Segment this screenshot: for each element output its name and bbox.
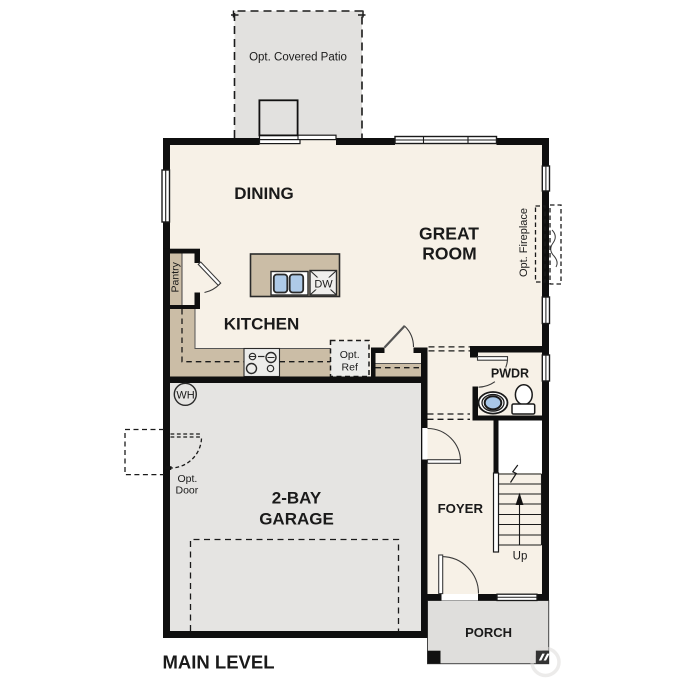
svg-text:GREAT: GREAT xyxy=(419,224,479,244)
svg-text:Opt. Fireplace: Opt. Fireplace xyxy=(518,208,530,277)
svg-text:ROOM: ROOM xyxy=(422,244,476,264)
svg-text:Opt. Covered Patio: Opt. Covered Patio xyxy=(249,52,347,64)
svg-text:MAIN LEVEL: MAIN LEVEL xyxy=(163,652,275,673)
svg-text:DINING: DINING xyxy=(234,184,294,203)
svg-text:FOYER: FOYER xyxy=(438,501,484,516)
svg-text:WH: WH xyxy=(176,389,194,401)
svg-text:PWDR: PWDR xyxy=(491,367,529,381)
svg-text:Door: Door xyxy=(176,485,199,497)
svg-text:Opt.: Opt. xyxy=(340,349,360,361)
svg-text:2-BAY: 2-BAY xyxy=(272,489,322,508)
svg-text:Ref: Ref xyxy=(342,362,358,374)
svg-text:DW: DW xyxy=(314,279,333,291)
svg-text:Up: Up xyxy=(513,551,528,563)
svg-text:Opt.: Opt. xyxy=(178,473,198,485)
svg-text:PORCH: PORCH xyxy=(465,625,512,640)
svg-text:KITCHEN: KITCHEN xyxy=(224,315,300,334)
svg-text:GARAGE: GARAGE xyxy=(259,510,334,529)
svg-text:Pantry: Pantry xyxy=(169,261,181,292)
